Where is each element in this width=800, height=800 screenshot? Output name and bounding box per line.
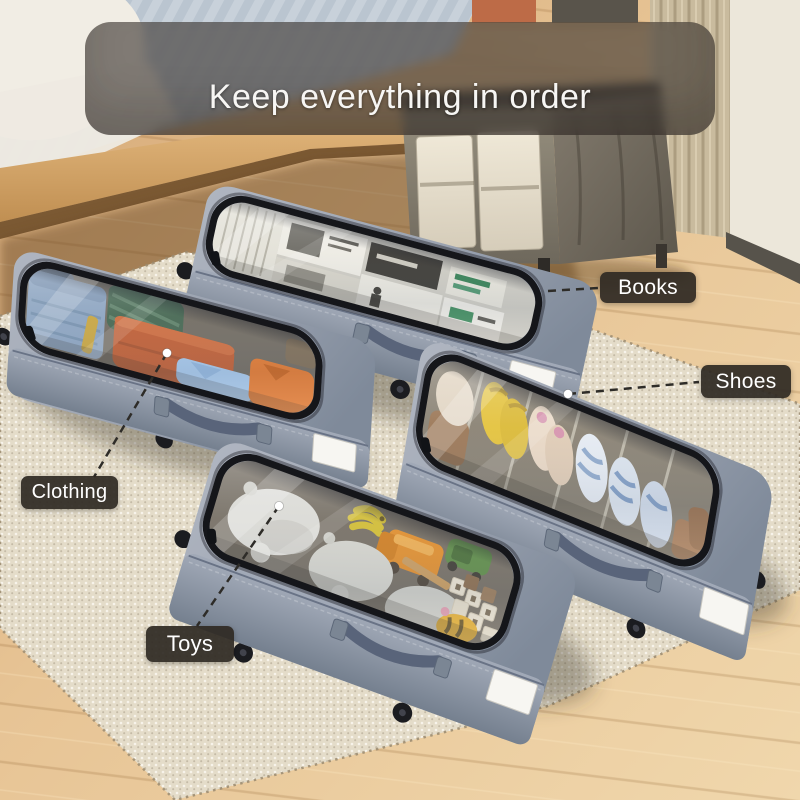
title-banner: Keep everything in order xyxy=(85,22,715,135)
callout-dot-clothing xyxy=(163,349,172,358)
tag-toys-label: Toys xyxy=(167,631,213,657)
tag-toys: Toys xyxy=(146,626,234,662)
callout-dot-shoes xyxy=(564,390,573,399)
zipper-pull xyxy=(207,529,217,544)
white-wall xyxy=(726,0,800,284)
tag-books: Books xyxy=(600,272,696,303)
tag-clothing: Clothing xyxy=(21,476,118,509)
tag-shoes-label: Shoes xyxy=(715,370,776,394)
tag-shoes: Shoes xyxy=(701,365,791,398)
tag-books-label: Books xyxy=(618,276,678,300)
product-photo: Keep everything in order Books Shoes Clo… xyxy=(0,0,800,800)
callout-dot-toys xyxy=(275,502,284,511)
tag-clothing-label: Clothing xyxy=(32,481,108,504)
decor-terracotta xyxy=(472,0,536,23)
decor-dark-object xyxy=(552,0,638,23)
page-title: Keep everything in order xyxy=(85,78,715,117)
